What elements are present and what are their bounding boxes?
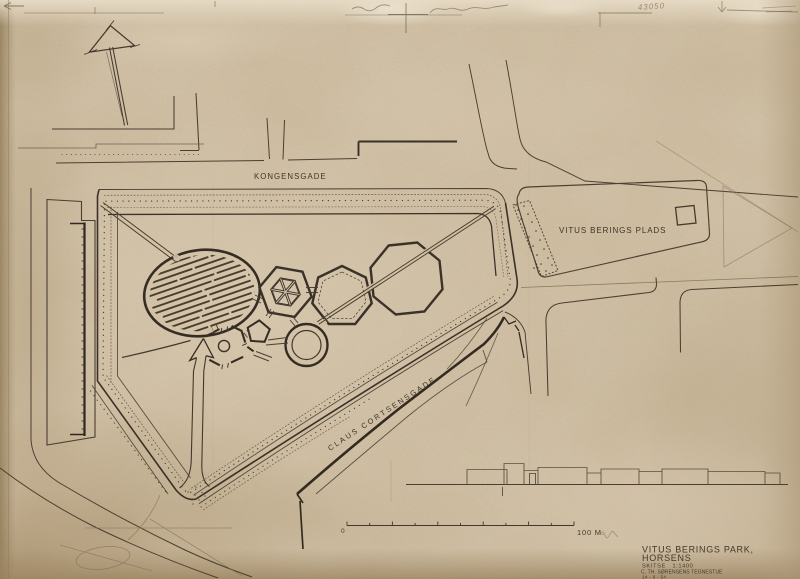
- svg-text:0: 0: [341, 528, 345, 535]
- svg-text:HORSENS: HORSENS: [642, 553, 691, 563]
- svg-text:KONGENSGADE: KONGENSGADE: [254, 172, 327, 181]
- svg-text:VITUS BERINGS PLADS: VITUS BERINGS PLADS: [559, 226, 666, 235]
- svg-text:14 - 6 - 54: 14 - 6 - 54: [642, 575, 666, 579]
- svg-text:100 M.: 100 M.: [577, 528, 605, 537]
- svg-text:43050: 43050: [638, 1, 666, 12]
